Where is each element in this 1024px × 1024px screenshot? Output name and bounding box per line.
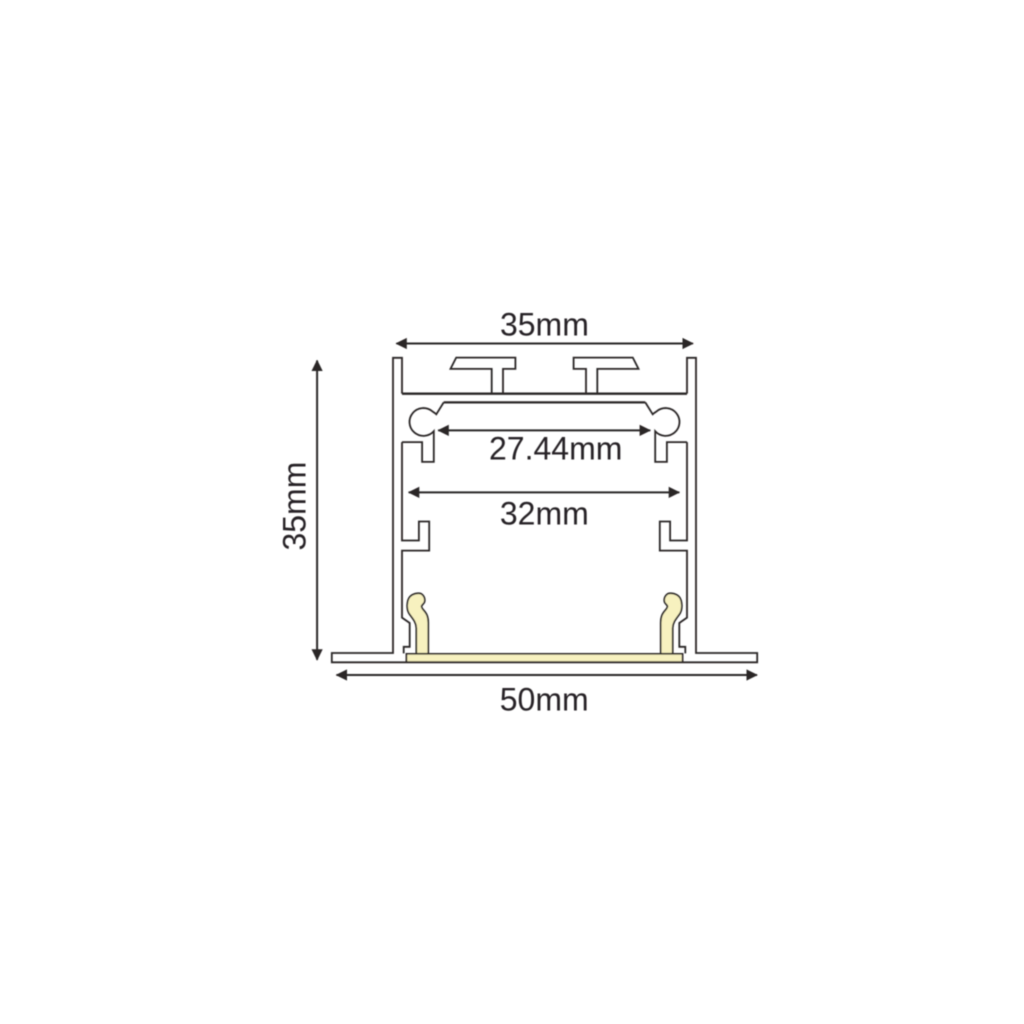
svg-text:27.44mm: 27.44mm — [489, 430, 622, 466]
svg-text:35mm: 35mm — [500, 307, 589, 343]
svg-text:50mm: 50mm — [500, 681, 589, 717]
svg-text:35mm: 35mm — [276, 462, 312, 551]
svg-text:32mm: 32mm — [500, 495, 589, 531]
